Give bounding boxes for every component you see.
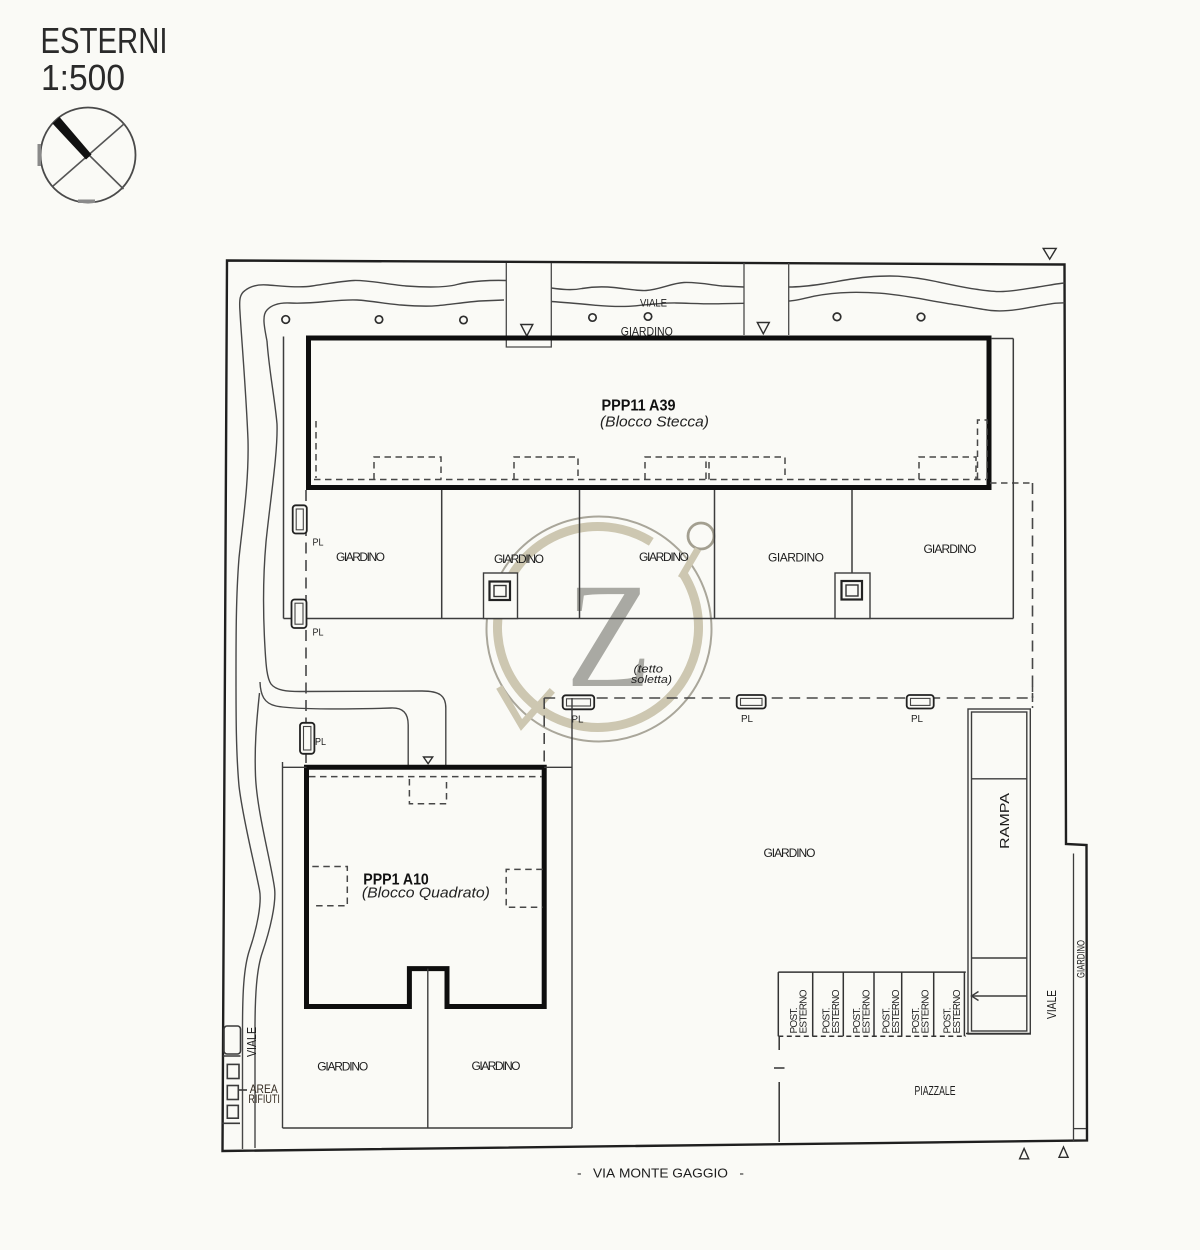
svg-text:1:500: 1:500 bbox=[41, 57, 125, 98]
svg-text:GIARDINO: GIARDINO bbox=[924, 542, 977, 556]
svg-text:GIARDINO: GIARDINO bbox=[317, 1060, 368, 1074]
svg-text:PL: PL bbox=[572, 715, 584, 726]
svg-text:GIARDINO: GIARDINO bbox=[336, 550, 385, 564]
svg-text:PPP11 A39: PPP11 A39 bbox=[602, 398, 676, 415]
svg-text:PL: PL bbox=[911, 714, 923, 725]
svg-text:PL: PL bbox=[741, 714, 753, 725]
svg-text:ESTERNO: ESTERNO bbox=[799, 989, 810, 1033]
svg-text:ESTERNO: ESTERNO bbox=[891, 989, 902, 1033]
svg-text:GIARDINO: GIARDINO bbox=[1076, 940, 1088, 978]
svg-text:ESTERNI: ESTERNI bbox=[41, 20, 168, 61]
svg-text:ESTERNO: ESTERNO bbox=[921, 989, 932, 1033]
svg-text:VIALE: VIALE bbox=[1045, 990, 1059, 1019]
svg-text:soletta): soletta) bbox=[631, 674, 672, 686]
svg-text:PL: PL bbox=[313, 538, 324, 549]
svg-text:- VIA MONTE GAGGIO -: - VIA MONTE GAGGIO - bbox=[577, 1166, 744, 1181]
svg-text:ESTERNO: ESTERNO bbox=[831, 989, 842, 1033]
svg-text:VIALE: VIALE bbox=[640, 298, 667, 310]
svg-text:GIARDINO: GIARDINO bbox=[472, 1059, 521, 1073]
svg-text:(Blocco Quadrato): (Blocco Quadrato) bbox=[362, 885, 490, 902]
svg-text:PL: PL bbox=[313, 628, 324, 639]
svg-text:(Blocco Stecca): (Blocco Stecca) bbox=[600, 414, 709, 431]
svg-text:GIARDINO: GIARDINO bbox=[494, 552, 544, 566]
svg-text:ESTERNO: ESTERNO bbox=[862, 989, 873, 1033]
svg-text:VIALE: VIALE bbox=[245, 1027, 259, 1057]
svg-text:RAMPA: RAMPA bbox=[998, 792, 1012, 849]
svg-text:GIARDINO: GIARDINO bbox=[764, 846, 816, 860]
svg-text:PL: PL bbox=[315, 737, 326, 748]
svg-text:GIARDINO: GIARDINO bbox=[768, 551, 824, 565]
svg-text:ESTERNO: ESTERNO bbox=[952, 989, 963, 1033]
svg-text:GIARDINO: GIARDINO bbox=[639, 550, 689, 564]
svg-text:PIAZZALE: PIAZZALE bbox=[915, 1084, 956, 1098]
svg-text:RIFIUTI: RIFIUTI bbox=[248, 1092, 280, 1106]
